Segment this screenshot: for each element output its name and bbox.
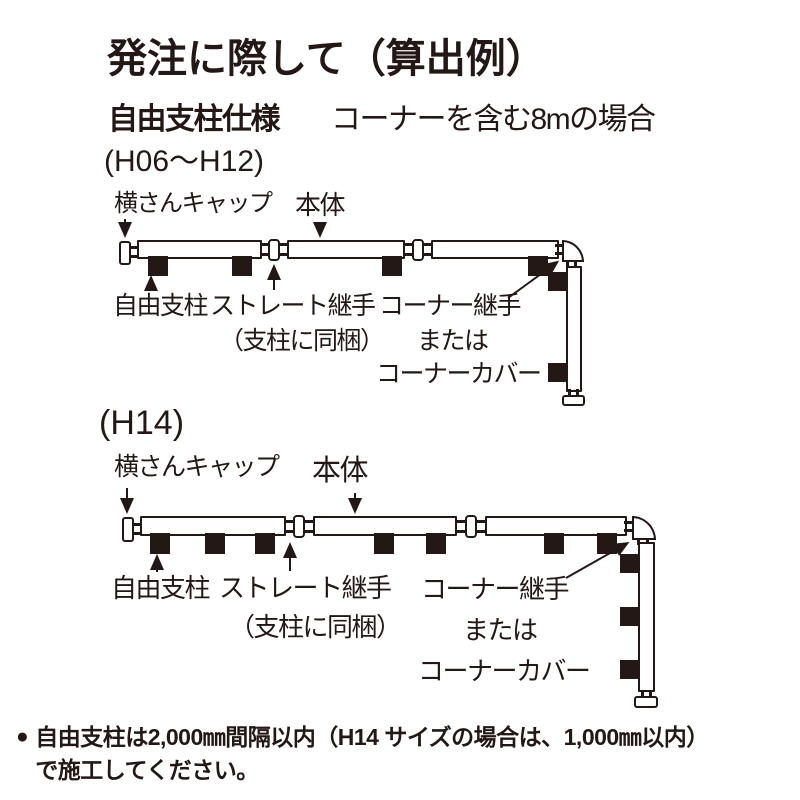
joint-tab	[285, 520, 293, 523]
diagram2-size-label: (H14)	[99, 406, 184, 442]
page: 発注に際して（算出例） 自由支柱仕様 コーナーを含む8mの場合 (H06〜H12…	[0, 0, 800, 800]
subtitle-spec: 自由支柱仕様	[108, 104, 279, 136]
diagram2-label-straight-joint-note: （支柱に同梱）	[229, 614, 401, 641]
straight-joint-part	[412, 239, 424, 261]
rail-cap-bottom	[634, 696, 658, 708]
free-post-marker	[205, 533, 225, 554]
diagram1-label-or: または	[417, 328, 488, 354]
free-post-marker	[374, 533, 394, 554]
footnote-line1: 自由支柱は2,000㎜間隔以内（H14 サイズの場合は、1,000㎜以内）	[35, 721, 709, 754]
joint-tab	[260, 243, 268, 246]
straight-joint-part	[293, 515, 305, 538]
joint-tab	[457, 530, 465, 533]
free-post-marker	[544, 533, 564, 554]
free-post-marker	[528, 256, 548, 276]
joint-tab	[305, 520, 313, 523]
diagram2-label-body: 本体	[312, 456, 367, 486]
free-post-marker	[597, 533, 617, 554]
free-post-marker	[620, 607, 638, 626]
joint-tab	[477, 530, 485, 533]
free-post-marker	[255, 533, 275, 554]
corner-joint-part	[632, 516, 656, 540]
subtitle-case: コーナーを含む8mの場合	[331, 104, 655, 136]
joint-tab	[404, 253, 412, 256]
joint-tab	[624, 521, 632, 524]
free-post-marker	[548, 363, 566, 382]
diagram1-size-label: (H06〜H12)	[104, 146, 264, 178]
joint-tab	[305, 530, 313, 533]
free-post-marker	[382, 256, 402, 276]
diagram1-label-free-post: 自由支柱	[113, 293, 207, 319]
diagram1-label-straight-joint: ストレート継手	[210, 293, 375, 319]
diagram2-label-corner-joint: コーナー継手	[421, 576, 568, 603]
rail-cap	[122, 517, 134, 542]
free-post-marker	[148, 256, 168, 276]
straight-joint-part	[465, 515, 477, 538]
arrow-corner-joint	[566, 544, 626, 578]
diagram2-label-free-post: 自由支柱	[111, 575, 209, 602]
free-post-marker	[150, 533, 170, 554]
free-post-marker	[620, 660, 638, 679]
joint-tab	[457, 520, 465, 523]
rail-section-vertical	[566, 266, 582, 392]
joint-tab	[404, 243, 412, 246]
diagram1-label-corner-joint: コーナー継手	[379, 293, 520, 319]
footnote-line2: で施工してください。	[35, 754, 709, 787]
diagram2-label-corner-cover: コーナーカバー	[418, 658, 590, 685]
diagram2-label-straight-joint: ストレート継手	[219, 575, 391, 602]
free-post-marker	[548, 272, 566, 291]
free-post-marker	[426, 533, 446, 554]
joint-tab	[285, 530, 293, 533]
diagram2-label-cap: 横さんキャップ	[114, 454, 279, 480]
footnote: ● 自由支柱は2,000㎜間隔以内（H14 サイズの場合は、1,000㎜以内） …	[16, 721, 794, 788]
free-post-marker	[620, 554, 638, 573]
bullet-icon: ●	[16, 721, 28, 788]
footnote-text: 自由支柱は2,000㎜間隔以内（H14 サイズの場合は、1,000㎜以内） で施…	[35, 721, 709, 788]
diagram1-label-cap: 横さんキャップ	[114, 191, 272, 216]
corner-joint-part	[562, 240, 584, 262]
page-title: 発注に際して（算出例）	[107, 38, 546, 80]
straight-joint-part	[268, 239, 280, 261]
rail-cap-bottom	[562, 395, 585, 406]
rail-cap	[119, 241, 131, 265]
joint-tab	[477, 520, 485, 523]
joint-tab	[624, 529, 632, 532]
diagram1-label-corner-cover: コーナーカバー	[376, 361, 541, 387]
rail-section-vertical	[638, 542, 655, 692]
free-post-marker	[232, 256, 252, 276]
diagram2-label-or: または	[463, 617, 537, 644]
diagram1-label-body: 本体	[295, 192, 344, 219]
diagram1-label-straight-joint-note: （支柱に同梱）	[219, 328, 384, 354]
joint-tab	[260, 253, 268, 256]
